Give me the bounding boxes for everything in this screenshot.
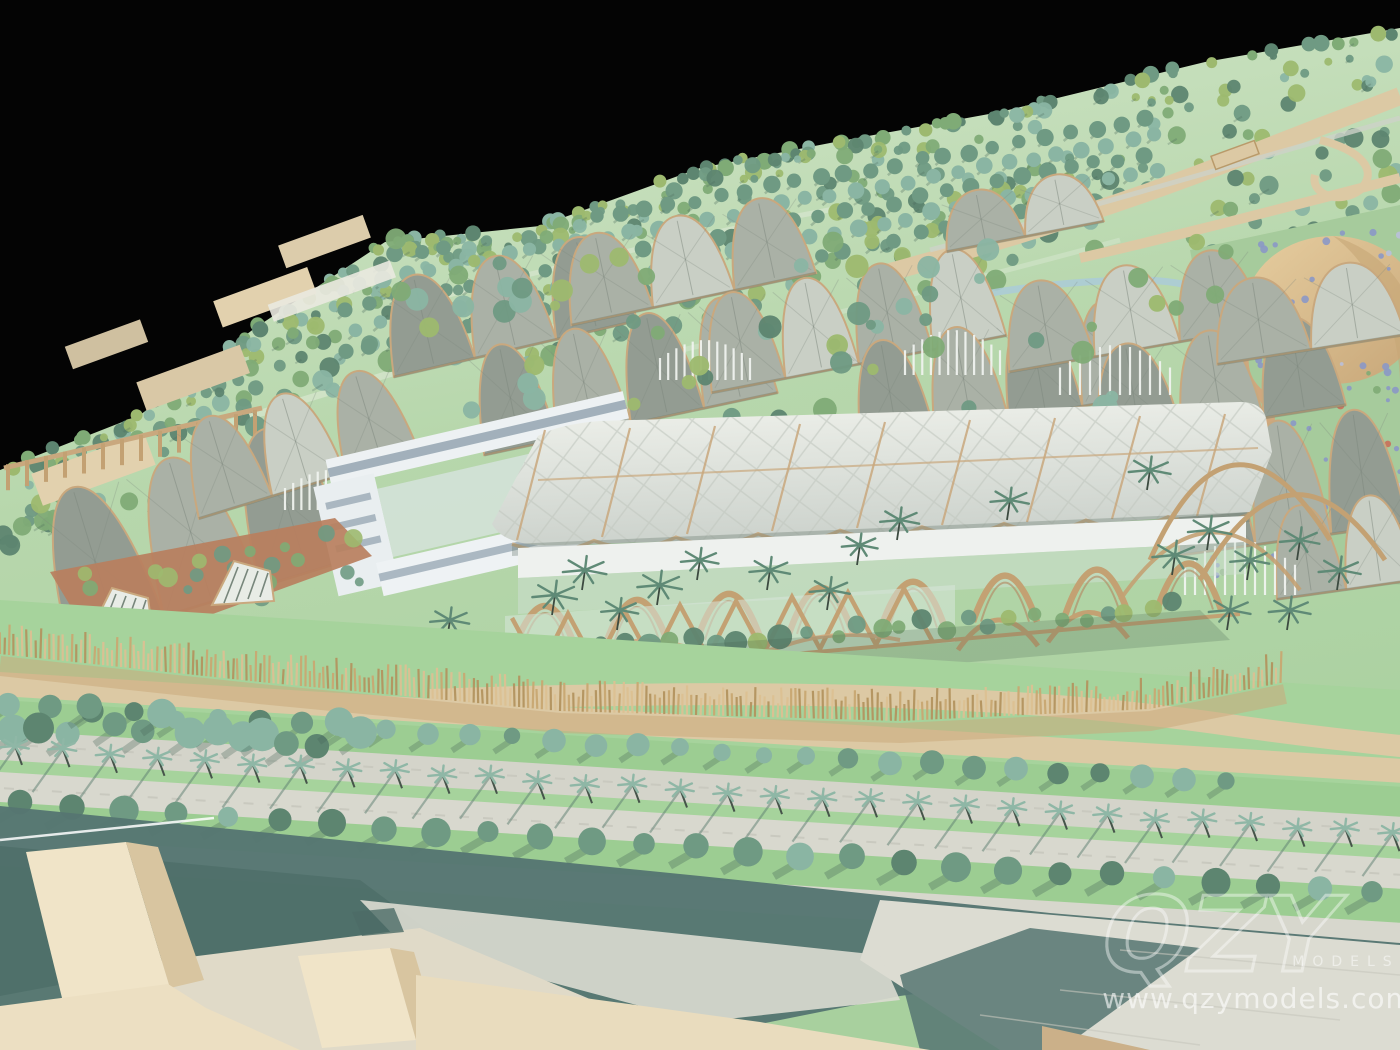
architectural-model-photo: QZY MODELS www.qzymodels.com [0,0,1400,1050]
photo-stage: QZY MODELS www.qzymodels.com [0,0,1400,1050]
